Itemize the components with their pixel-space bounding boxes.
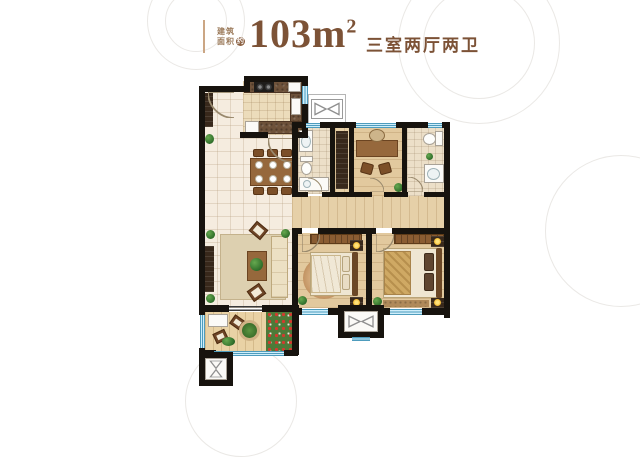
study-chair bbox=[369, 129, 385, 142]
living-plant-bottom bbox=[206, 294, 215, 303]
door-bath-master bbox=[408, 177, 423, 192]
dinner-plate bbox=[283, 175, 291, 183]
floorplan-page: { "title": { "area_label_line1": "建筑", "… bbox=[0, 0, 640, 410]
balcony-bench bbox=[208, 314, 228, 327]
door-study bbox=[370, 178, 384, 192]
door-bedroom-second bbox=[302, 234, 320, 252]
bedroom-master-duvet bbox=[384, 251, 411, 295]
window-balcony-left bbox=[200, 315, 205, 348]
bedroom-master-headboard bbox=[436, 248, 442, 298]
wall-wing-top-3 bbox=[396, 122, 428, 128]
living-plant-right bbox=[281, 229, 290, 238]
hall-bookshelf bbox=[336, 131, 348, 189]
kitchen-sink-top bbox=[288, 82, 301, 92]
wall-bath-main-left bbox=[292, 122, 298, 196]
wall-bath-main-right bbox=[330, 128, 335, 196]
wall-kitchen-right-upper bbox=[302, 76, 308, 86]
bedroom-second-pillow-2 bbox=[342, 274, 350, 290]
bath-master-toilet-tank bbox=[435, 131, 443, 146]
wall-outer-right bbox=[444, 122, 450, 318]
wall-living-bottom-left bbox=[199, 305, 229, 312]
wall-wing-bottom-4 bbox=[424, 192, 444, 197]
wall-study-left bbox=[349, 122, 354, 196]
dinner-plate bbox=[283, 161, 291, 169]
living-plant-top bbox=[206, 230, 215, 239]
bedroom-master-pillow-1 bbox=[424, 253, 434, 271]
window-bedroom-second bbox=[302, 309, 328, 315]
dinner-plate bbox=[255, 175, 263, 183]
kitchen-sink-right bbox=[291, 98, 301, 115]
window-bath-main bbox=[306, 123, 320, 128]
bedroom-second-plant bbox=[298, 296, 307, 305]
flue-left-symbol bbox=[207, 359, 225, 379]
balcony-slider bbox=[229, 306, 262, 311]
bath-master-sink-basin bbox=[427, 168, 440, 180]
door-bath-main bbox=[308, 178, 322, 192]
flue-top-symbol bbox=[311, 99, 343, 119]
bedroom-second-lamp-1 bbox=[353, 242, 360, 249]
door-bedroom-master bbox=[376, 234, 394, 252]
dining-chair bbox=[281, 187, 292, 195]
bedroom-second-pillow-1 bbox=[342, 256, 350, 272]
wall-wing-bottom-2 bbox=[322, 192, 372, 197]
bath-master-toilet-bowl bbox=[423, 133, 436, 145]
dinner-plate bbox=[255, 161, 263, 169]
sofa bbox=[271, 236, 288, 298]
bedroom-second-headboard bbox=[352, 252, 358, 296]
stove bbox=[254, 82, 274, 92]
window-kitchen bbox=[302, 86, 308, 104]
study-desk bbox=[356, 140, 398, 157]
dining-chair bbox=[253, 149, 264, 157]
wall-wing-bottom-3 bbox=[384, 192, 408, 197]
flue-bottom-symbol bbox=[346, 313, 376, 330]
wall-kitchen-bottom-left bbox=[240, 132, 268, 138]
bedroom-master-lamp-1 bbox=[434, 238, 441, 245]
wall-outer-left bbox=[199, 86, 205, 315]
floorplan-drawing bbox=[0, 0, 640, 410]
wall-balcony-bottom-right bbox=[284, 350, 298, 356]
window-study bbox=[356, 123, 396, 128]
bedroom-master-lamp-2 bbox=[434, 299, 441, 306]
wall-kitchen-top bbox=[244, 76, 308, 82]
entry-plant bbox=[205, 134, 214, 144]
dinner-plate bbox=[269, 161, 277, 169]
balcony-flower-bed bbox=[266, 311, 292, 351]
wall-living-bottom-right bbox=[262, 305, 296, 312]
door-entry bbox=[208, 92, 234, 118]
wall-study-right bbox=[402, 122, 407, 196]
bedroom-master-pillow-2 bbox=[424, 273, 434, 291]
wall-bedrooms-bottom-4 bbox=[422, 308, 448, 315]
dining-chair bbox=[253, 187, 264, 195]
bedroom-second-duvet bbox=[311, 255, 341, 293]
balcony-plant-table bbox=[239, 320, 260, 341]
coffee-table-plant bbox=[250, 258, 263, 271]
corridor-floor bbox=[292, 196, 444, 228]
tv-cabinet bbox=[205, 246, 214, 292]
bath-master-plant bbox=[426, 153, 433, 160]
wall-bedrooms-top-3 bbox=[392, 228, 444, 234]
wall-balcony-right bbox=[292, 305, 299, 355]
dinner-plate bbox=[269, 175, 277, 183]
balcony-plant bbox=[222, 337, 235, 346]
bedroom-master-rug bbox=[383, 300, 429, 307]
door-kitchen bbox=[268, 138, 292, 162]
window-bath-master bbox=[428, 123, 442, 128]
wall-bedroom-divider bbox=[366, 233, 372, 308]
wall-living-bedroom-divider bbox=[292, 228, 298, 308]
wall-wing-bottom-1 bbox=[292, 192, 308, 197]
dining-chair bbox=[267, 187, 278, 195]
window-flue-bottom bbox=[352, 337, 370, 341]
window-bedroom-master bbox=[390, 309, 422, 315]
bath-main-toilet-bowl bbox=[301, 162, 312, 175]
